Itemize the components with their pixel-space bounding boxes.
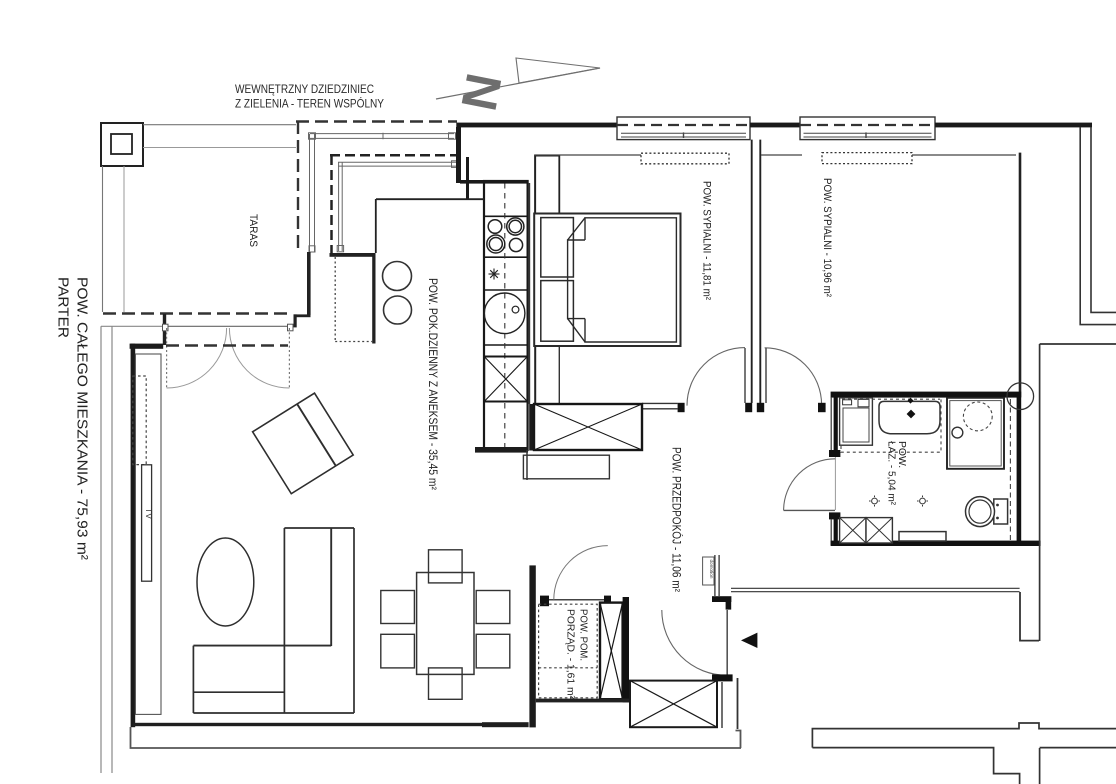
svg-text:POW. CAŁEGO MIESZKANIA - 75,93: POW. CAŁEGO MIESZKANIA - 75,93 m²	[74, 277, 91, 560]
svg-text:POW.: POW.	[896, 441, 907, 468]
svg-text:POW. SYPIALNI - 11,81 m²: POW. SYPIALNI - 11,81 m²	[700, 181, 712, 300]
svg-text:TV: TV	[144, 508, 154, 519]
svg-text:PARTER: PARTER	[55, 277, 72, 338]
svg-text:POW. POM.: POW. POM.	[577, 609, 588, 661]
svg-text:POW. SYPIALNI - 10,96 m²: POW. SYPIALNI - 10,96 m²	[821, 178, 833, 297]
svg-text:WEWNĘTRZNY DZIEDZINIEC: WEWNĘTRZNY DZIEDZINIEC	[235, 82, 374, 96]
svg-text:ŁAZ. - 5,04 m²: ŁAZ. - 5,04 m²	[885, 441, 896, 506]
svg-text:TARAS: TARAS	[247, 214, 259, 247]
svg-text:POW. POK.DZIENNY Z ANEKSEM - 3: POW. POK.DZIENNY Z ANEKSEM - 35,45 m²	[426, 278, 439, 490]
svg-text:PORZĄD. - 1,61 m²: PORZĄD. - 1,61 m²	[564, 609, 575, 700]
svg-text:Z ZIELENIA - TEREN WSPÓLNY: Z ZIELENIA - TEREN WSPÓLNY	[235, 95, 384, 110]
svg-text:domotion: domotion	[709, 560, 714, 579]
svg-text:POW. PRZEDPOKÓJ - 11,06 m²: POW. PRZEDPOKÓJ - 11,06 m²	[669, 447, 682, 592]
